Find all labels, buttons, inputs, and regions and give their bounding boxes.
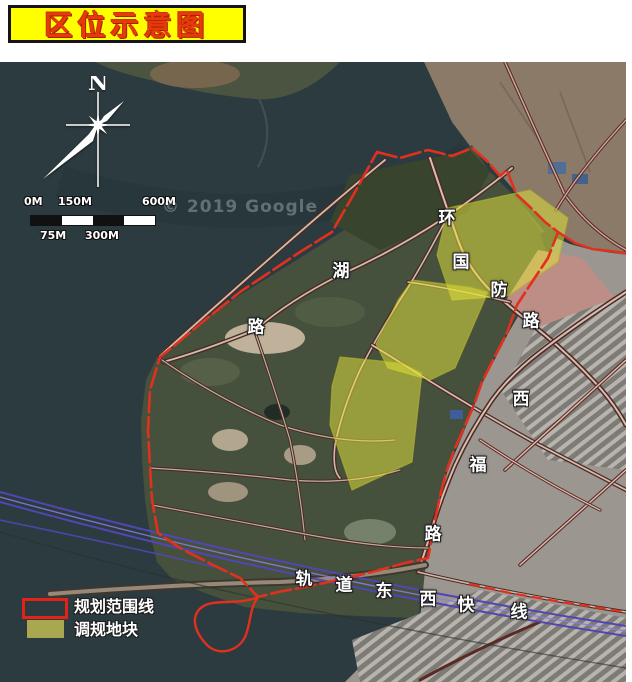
compass-rose: N <box>40 76 160 196</box>
legend-label-boundary: 规划范围线 <box>74 599 154 615</box>
rail-label: 线 <box>511 605 528 622</box>
rail-label: 道 <box>336 578 353 595</box>
compass-n-label: N <box>88 76 108 96</box>
scale-bar-track <box>30 215 156 226</box>
scale-tick: 75M <box>40 230 66 241</box>
rail-label: 快 <box>458 598 475 615</box>
legend-label-parcel: 调规地块 <box>74 622 138 638</box>
rail-label: 东 <box>376 584 393 601</box>
legend-swatch-boundary <box>22 598 68 619</box>
road-label: 环 <box>439 211 456 228</box>
satellite-map: N 0M 150M 600M 75M 300M © 2019 Google 环 … <box>0 62 626 682</box>
rail-label: 轨 <box>296 572 313 589</box>
title-banner: 区位示意图 <box>8 5 246 43</box>
road-label: 路 <box>248 320 265 337</box>
imagery-watermark: © 2019 Google <box>162 197 318 217</box>
road-label: 路 <box>523 314 540 331</box>
road-label: 西 <box>513 392 530 409</box>
legend-swatch-parcel <box>27 620 64 638</box>
road-label: 路 <box>425 527 442 544</box>
road-label: 防 <box>491 283 508 300</box>
road-label: 福 <box>470 458 487 475</box>
scale-tick: 300M <box>85 230 119 241</box>
road-label: 国 <box>453 255 470 272</box>
road-label: 湖 <box>333 264 350 281</box>
rail-label: 西 <box>420 592 437 609</box>
page-title: 区位示意图 <box>44 4 209 44</box>
scale-tick: 0M <box>24 196 43 207</box>
scale-tick: 150M <box>58 196 92 207</box>
